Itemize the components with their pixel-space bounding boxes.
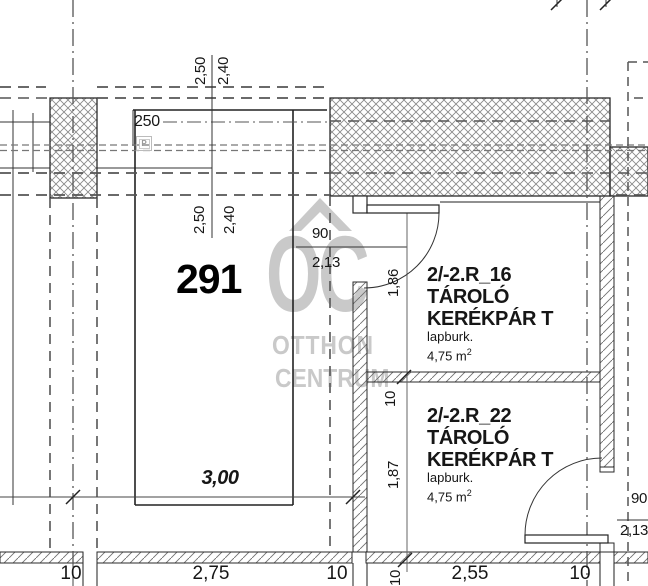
door-top-leaf <box>367 205 439 213</box>
dim-wall-thickness-bottom: 10 <box>388 558 404 586</box>
dim-room2-depth: 1,87 <box>386 455 402 495</box>
dim-room1-depth: 1,86 <box>386 263 402 303</box>
room-r22-id: 2/-2.R_22 <box>427 405 553 427</box>
room-r22-area: 4,75 m2 <box>427 486 553 505</box>
floor-plan: OC OTTHON CENTRUM <box>0 0 648 586</box>
top-wall-hatch-right <box>610 147 648 196</box>
door-right-width: 90 <box>624 491 648 507</box>
mid-partition-wall <box>367 372 600 382</box>
right-wall-door-jamb <box>600 543 614 552</box>
room-r22-type1: TÁROLÓ <box>427 427 553 449</box>
bottom-wall-1 <box>0 552 83 563</box>
door-top-width: 90 <box>300 226 340 242</box>
bottom-dim-0: 10 <box>54 566 88 582</box>
room-r16-type1: TÁROLÓ <box>427 286 553 308</box>
bottom-wall-2 <box>97 552 352 563</box>
right-wall-hatch <box>600 196 614 467</box>
pier-width-label: 250 <box>134 113 160 131</box>
bottom-dim-3: 2,55 <box>443 566 497 582</box>
room-r22-finish: lapburk. <box>427 471 553 486</box>
bottom-dim-2: 10 <box>320 566 354 582</box>
dim-wall-thickness: 10 <box>383 379 399 419</box>
door-right-height: 2,13 <box>614 523 648 539</box>
room-r16-area: 4,75 m2 <box>427 345 553 364</box>
dim-top-inner: 2,40 <box>216 51 232 91</box>
center-wall-hatch <box>353 282 367 552</box>
bottom-wall-4 <box>614 552 648 563</box>
room-r22-type2: KERÉKPÁR T <box>427 449 553 471</box>
adjacent-unit-dashed-outline <box>628 62 648 586</box>
room-291-width: 3,00 <box>190 470 250 486</box>
room-r16-finish: lapburk. <box>427 330 553 345</box>
right-wall-door-cap <box>600 467 614 472</box>
room-r22-label: 2/-2.R_22 TÁROLÓ KERÉKPÁR T lapburk. 4,7… <box>427 405 553 504</box>
dim-top-outer: 2,50 <box>193 51 209 91</box>
door-right-leaf <box>525 535 608 543</box>
top-door-jamb <box>353 196 367 213</box>
bottom-dim-1: 2,75 <box>184 566 238 582</box>
door-top-height: 2,13 <box>306 255 346 271</box>
bottom-dim-4: 10 <box>563 566 597 582</box>
dim-mid-inner: 2,40 <box>222 200 238 240</box>
room-r16-id: 2/-2.R_16 <box>427 264 553 286</box>
room-291-number: 291 <box>176 256 241 303</box>
top-wall-hatch <box>330 98 610 196</box>
parking-icon: P <box>136 136 152 151</box>
room-r16-type2: KERÉKPÁR T <box>427 308 553 330</box>
dim-mid-outer: 2,50 <box>192 200 208 240</box>
room-r16-label: 2/-2.R_16 TÁROLÓ KERÉKPÁR T lapburk. 4,7… <box>427 264 553 363</box>
room-291-outline <box>133 110 327 505</box>
